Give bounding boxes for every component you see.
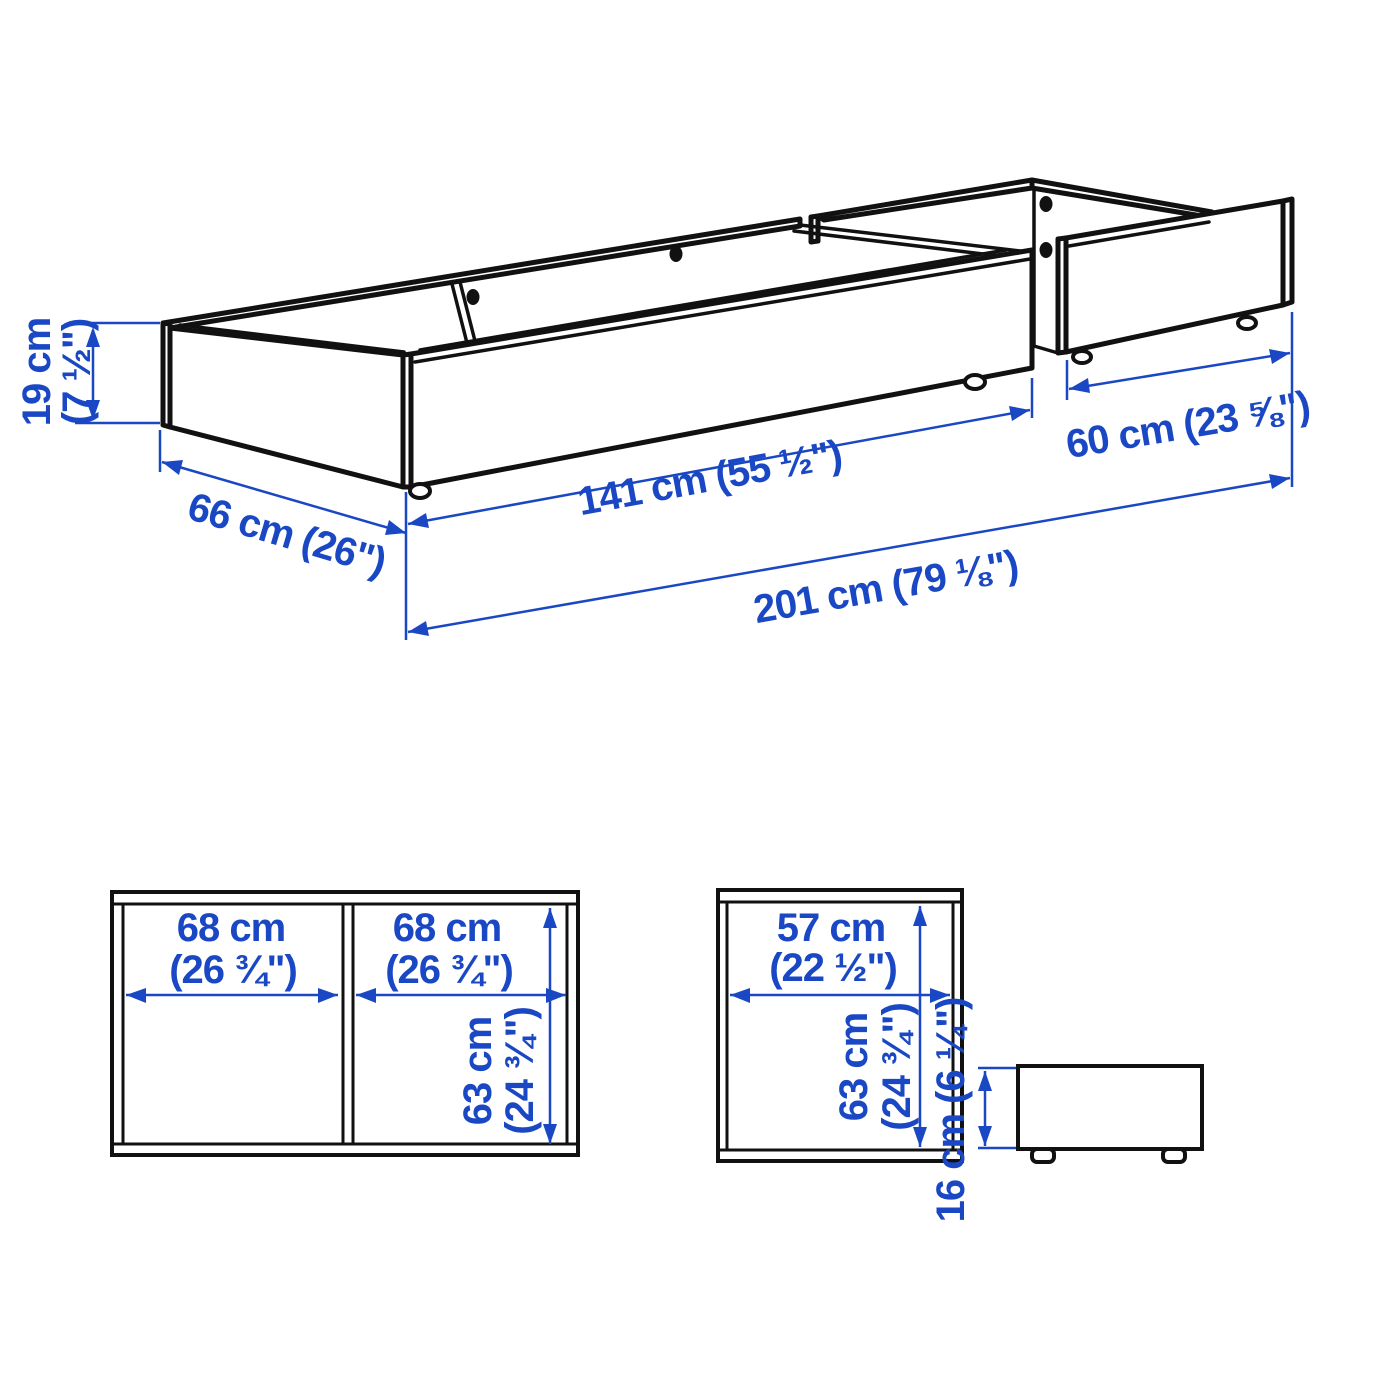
short-box-foot-right [1238, 317, 1256, 329]
arrowhead-up [978, 1071, 992, 1091]
label-63cm-short-metric: 63 cm [832, 1013, 876, 1121]
label-68cm-2-imperial: (26 ¾") [385, 948, 513, 992]
long-box-divider-left-edge [452, 284, 468, 347]
arrowhead-down [978, 1126, 992, 1146]
arrowhead-left [408, 621, 429, 636]
iso-view: 19 cm (7 ½") 66 cm(26") 141 cm(55 ½") [15, 180, 1313, 640]
arrowhead-left [162, 460, 183, 475]
dimension-diagram: 19 cm (7 ½") 66 cm(26") 141 cm(55 ½") [0, 0, 1400, 1400]
short-box-foot-left [1073, 351, 1091, 363]
short-box-left-panel-bottom [1034, 346, 1058, 353]
long-box-left-end-face [170, 328, 403, 487]
label-68cm-1-metric: 68 cm [177, 906, 285, 950]
dim-length-60cm: 60 cm(23 ⅝") [1063, 349, 1313, 467]
long-box-hole-back [670, 246, 683, 262]
long-box-drawing [163, 219, 1032, 498]
label-63cm-short-imperial: (24 ¾") [875, 1003, 919, 1131]
foot-right [1163, 1149, 1185, 1162]
label-68cm-1-imperial: (26 ¾") [169, 948, 297, 992]
plan-views: 68 cm (26 ¾") 68 cm (26 ¾") 63 cm (24 ¾"… [112, 890, 1202, 1222]
long-box-foot-left [410, 484, 430, 498]
dim-height-19cm: 19 cm (7 ½") [15, 318, 160, 426]
arrowhead-right [1009, 406, 1030, 421]
dim-line [1069, 353, 1290, 389]
arrowhead-right [1269, 349, 1290, 364]
short-box-hole-lower [1040, 242, 1053, 258]
arrowhead-left [1069, 378, 1090, 393]
diagram-canvas: 19 cm (7 ½") 66 cm(26") 141 cm(55 ½") [0, 0, 1400, 1400]
label-63cm-metric: 63 cm [456, 1017, 500, 1125]
label-68cm-2-metric: 68 cm [393, 906, 501, 950]
label-57cm-imperial: (22 ½") [769, 946, 897, 990]
short-box-back-top-band [818, 180, 1032, 220]
long-box-hole-divider [467, 289, 480, 305]
arrowhead-right [1269, 474, 1290, 489]
side-elevation-view: 16 cm(6 ¼") [929, 998, 1202, 1223]
label-57cm-metric: 57 cm [777, 906, 885, 950]
long-box-top-view: 68 cm (26 ¾") 68 cm (26 ¾") 63 cm (24 ¾"… [112, 892, 578, 1155]
short-box-hole-upper [1040, 196, 1053, 212]
label-60cm: 60 cm(23 ⅝") [1063, 383, 1313, 467]
label-201cm: 201 cm(79 ⅛") [750, 542, 1021, 632]
label-19cm-metric: 19 cm [15, 318, 59, 426]
arrowhead-right [385, 520, 406, 535]
foot-left [1032, 1149, 1054, 1162]
short-box-left-top-band [1032, 180, 1212, 217]
label-19cm-imperial: (7 ½") [55, 319, 99, 425]
long-box-foot-right [965, 375, 985, 389]
long-box-front-face [411, 250, 1032, 487]
outline [1018, 1066, 1202, 1149]
short-box-back-left-cap [811, 216, 818, 242]
long-box-right-end-top [800, 225, 1029, 252]
label-63cm-imperial: (24 ¾") [498, 1007, 542, 1135]
arrowhead-left [408, 513, 429, 528]
short-box-top-view: 57 cm (22 ½") 63 cm (24 ¾") [718, 890, 962, 1161]
short-box-right-cap [1283, 199, 1292, 305]
